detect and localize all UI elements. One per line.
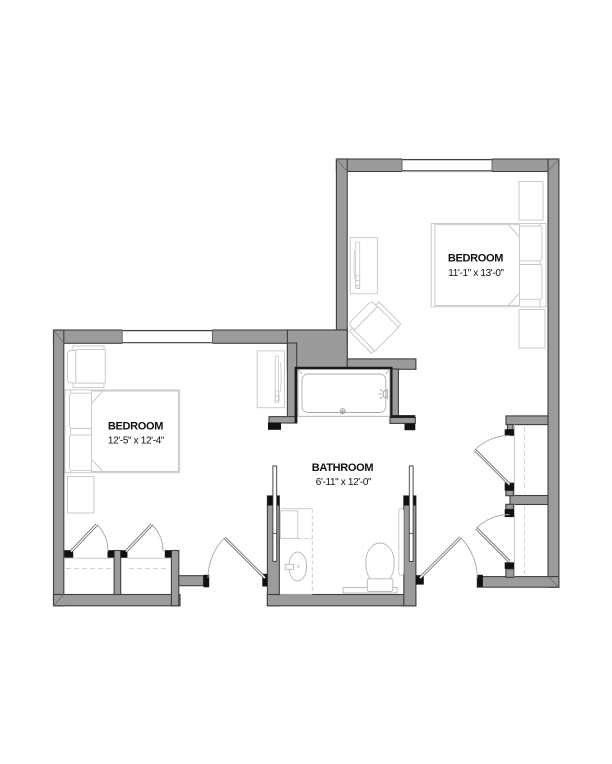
svg-text:6'-11" x 12'-0": 6'-11" x 12'-0": [316, 477, 372, 488]
svg-text:BEDROOM: BEDROOM: [108, 421, 163, 433]
svg-text:BEDROOM: BEDROOM: [448, 253, 503, 265]
svg-text:11'-1" x 13'-0": 11'-1" x 13'-0": [448, 268, 504, 279]
svg-text:BATHROOM: BATHROOM: [312, 462, 374, 474]
svg-text:12'-5" x 12'-4": 12'-5" x 12'-4": [108, 436, 165, 447]
